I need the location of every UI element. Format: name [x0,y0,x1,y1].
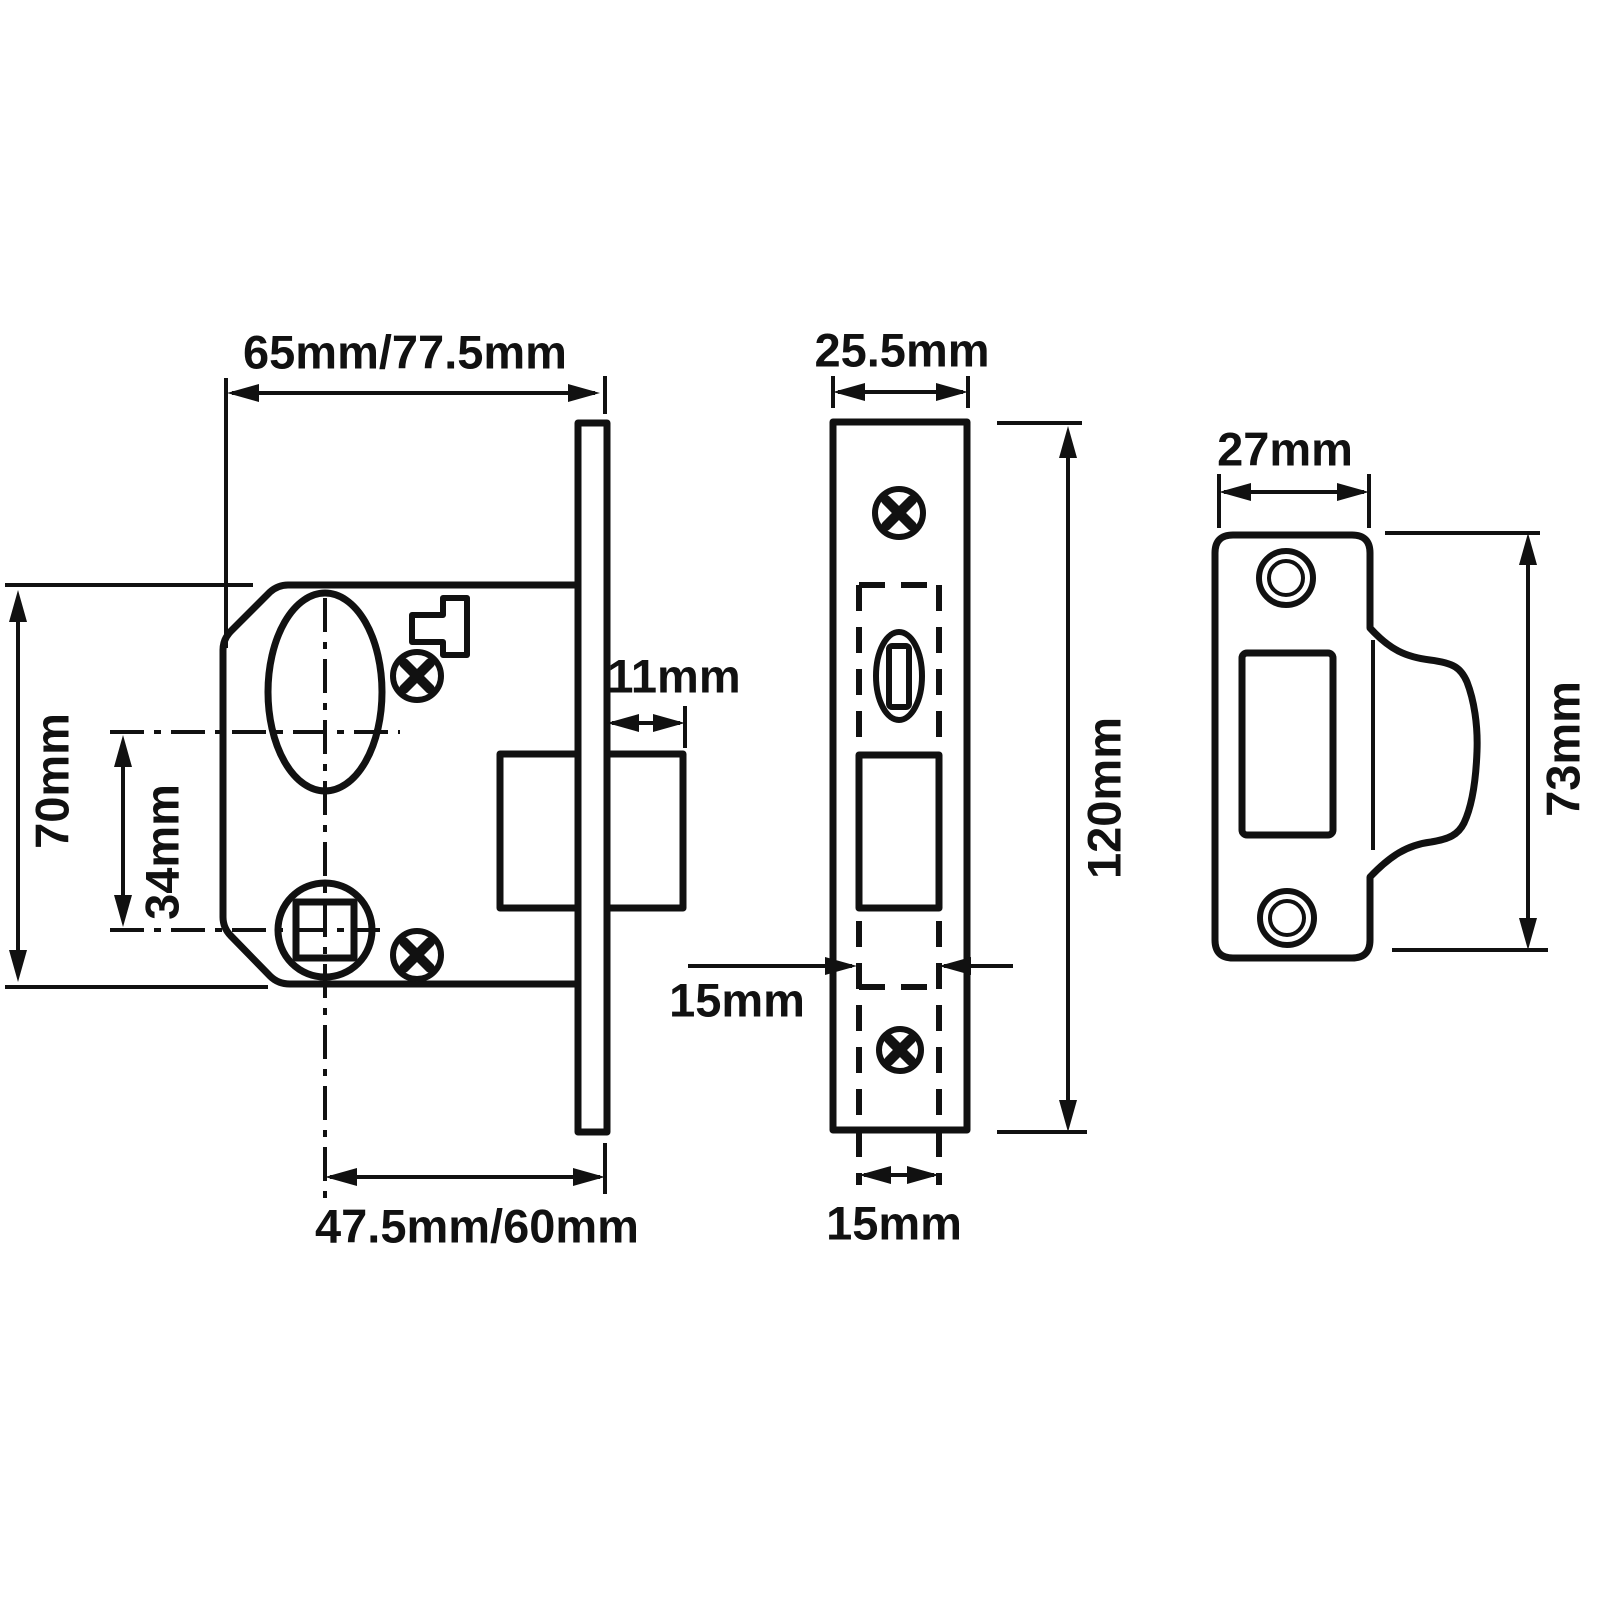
arrowhead-down-icon [114,895,132,927]
arrowhead-right-icon [653,714,685,732]
arrowhead-left-icon [227,384,259,402]
arrowhead-left-icon [1219,483,1251,501]
dim-label-faceplate-height: 120mm [1078,717,1131,879]
dimension-bolt-projection [607,706,685,748]
arrowhead-left-icon [833,383,865,401]
dimension-case-width-bottom [859,1166,939,1184]
strike-screw-hole-bottom [1260,891,1314,945]
screw-top [393,652,441,700]
arrowhead-up-icon [1519,533,1537,565]
latch-bolt-outer [607,754,683,908]
arrowhead-down-icon [1519,918,1537,950]
dim-label-case-width-bottom: 15mm [826,1197,962,1250]
arrowhead-up-icon [114,735,132,767]
dim-label-strike-width: 27mm [1217,423,1353,476]
faceplate-view [833,422,967,1185]
dim-label-backset: 47.5mm/60mm [315,1200,639,1253]
dimension-backset [325,1143,605,1194]
arrowhead-up-icon [9,590,27,622]
strike-screw-hole-top [1259,551,1313,605]
arrowhead-right-icon [573,1168,605,1186]
dimension-cylinder-to-spindle [114,735,132,927]
cylinder-front [876,632,922,720]
arrowhead-right-icon [936,383,968,401]
screw-bottom-front [879,1029,921,1071]
arrowhead-down-icon [1059,1100,1077,1132]
lock-body-view [110,423,683,1202]
dim-label-faceplate-width: 25.5mm [814,324,989,377]
dim-label-strike-height: 73mm [1537,681,1590,817]
arrowhead-right-icon [1337,483,1369,501]
screw-bottom [393,931,441,979]
dimension-strike-width [1219,474,1369,528]
faceplate-side [578,423,607,1132]
keyway-slot [889,646,909,707]
dimension-faceplate-height [997,423,1087,1132]
dim-label-bolt-projection: 11mm [607,650,740,703]
arrowhead-right-icon [568,384,600,402]
arrowhead-right-icon [907,1166,939,1184]
strike-plate-view [1215,535,1477,958]
dimension-faceplate-width [833,376,968,408]
arrowhead-down-icon [9,950,27,982]
latch-bolt-front [859,755,939,908]
dim-label-case-width: 15mm [669,974,805,1027]
latch-bolt-inner [500,754,578,908]
arrowhead-up-icon [1059,426,1077,458]
dim-label-cylinder-to-spindle: 34mm [136,784,189,920]
dim-label-body-height: 70mm [26,713,79,849]
strike-latch-opening [1242,653,1333,835]
arrowhead-left-icon [607,714,639,732]
screw-top-front [875,489,923,537]
arrowhead-left-icon [325,1168,357,1186]
technical-drawing-mortice-latch: 65mm/77.5mm 70mm 34mm 11mm 47.5mm/60mm 2… [0,0,1600,1600]
dim-label-body-width: 65mm/77.5mm [243,326,567,379]
arrowhead-left-icon [859,1166,891,1184]
drawing-canvas: 65mm/77.5mm 70mm 34mm 11mm 47.5mm/60mm 2… [0,0,1600,1600]
